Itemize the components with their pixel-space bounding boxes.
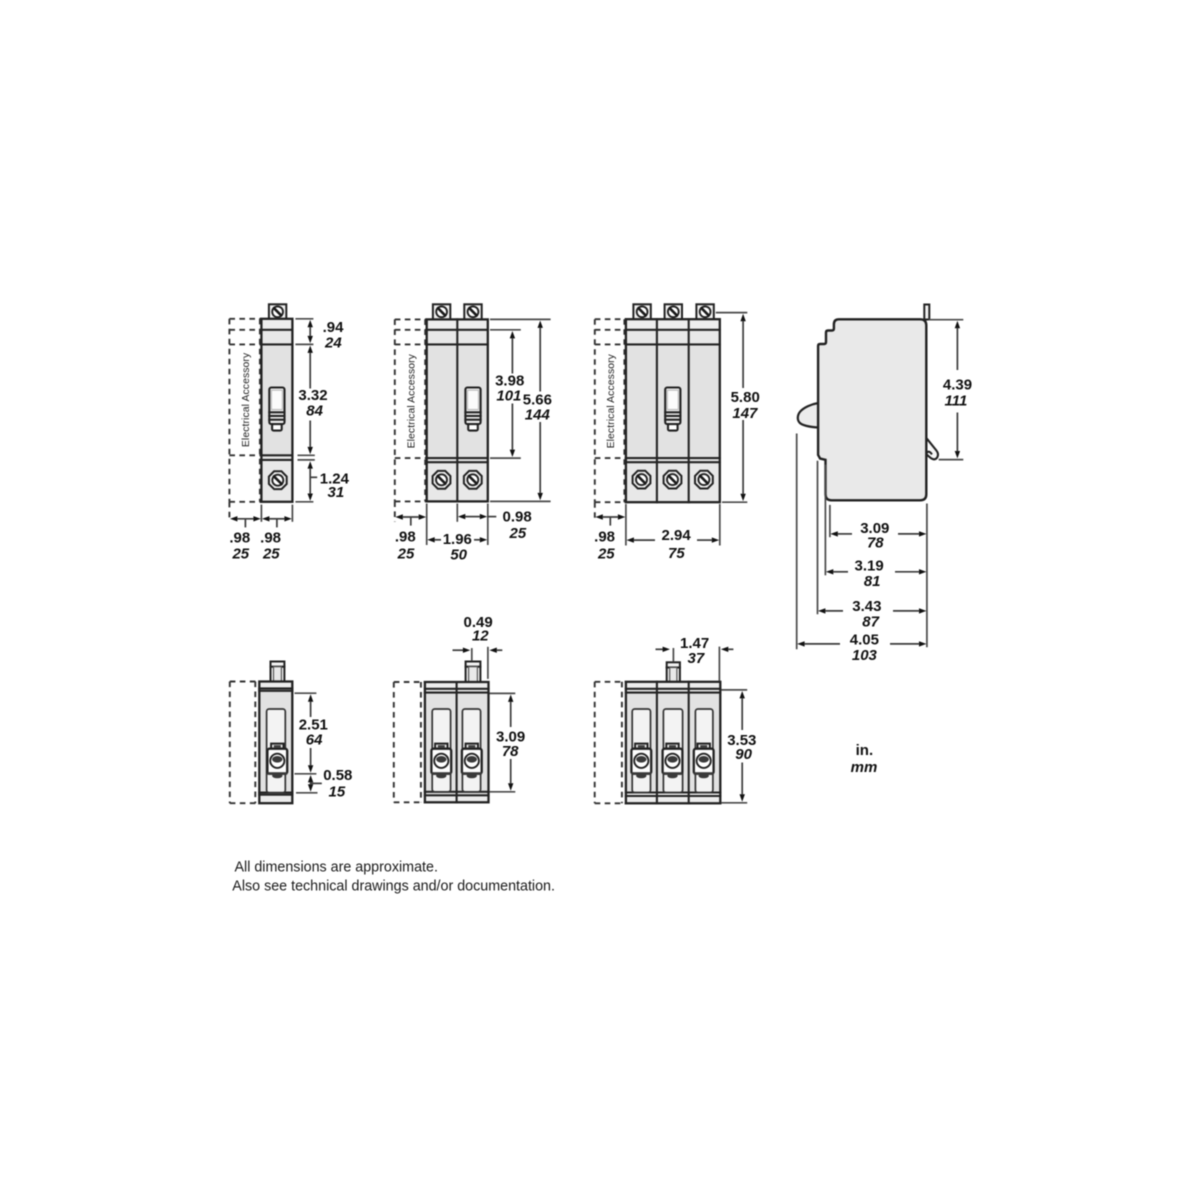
svg-text:0.58: 0.58 [323, 767, 352, 784]
svg-text:81: 81 [864, 573, 881, 590]
svg-text:3.32: 3.32 [298, 387, 327, 404]
svg-text:in.: in. [856, 742, 874, 759]
svg-text:25: 25 [509, 525, 527, 542]
svg-text:64: 64 [306, 732, 323, 749]
svg-text:78: 78 [867, 535, 884, 552]
svg-text:111: 111 [945, 393, 968, 410]
svg-text:3.19: 3.19 [854, 558, 883, 575]
svg-text:78: 78 [502, 743, 519, 760]
svg-text:Electrical Accessory: Electrical Accessory [606, 353, 617, 448]
svg-text:144: 144 [525, 406, 551, 423]
svg-text:.98: .98 [594, 529, 615, 546]
svg-text:4.05: 4.05 [850, 631, 879, 648]
svg-text:25: 25 [262, 545, 280, 562]
svg-text:75: 75 [668, 545, 685, 562]
svg-text:31: 31 [328, 484, 345, 501]
svg-text:101: 101 [496, 387, 521, 404]
svg-text:Also see technical drawings an: Also see technical drawings and/or docum… [232, 878, 555, 894]
svg-text:15: 15 [329, 783, 346, 800]
svg-text:37: 37 [688, 650, 705, 667]
svg-text:84: 84 [306, 403, 323, 420]
svg-text:5.80: 5.80 [731, 389, 760, 406]
svg-text:90: 90 [735, 746, 752, 763]
svg-text:147: 147 [732, 405, 758, 422]
svg-text:Electrical Accessory: Electrical Accessory [241, 352, 252, 447]
svg-text:.98: .98 [260, 529, 281, 546]
svg-text:.94: .94 [323, 319, 345, 336]
svg-text:2.94: 2.94 [661, 527, 691, 544]
svg-text:103: 103 [852, 647, 878, 664]
svg-text:Electrical Accessory: Electrical Accessory [407, 353, 418, 448]
svg-text:mm: mm [851, 759, 878, 776]
svg-text:.98: .98 [395, 529, 416, 546]
svg-text:12: 12 [472, 628, 489, 645]
svg-text:.98: .98 [229, 529, 250, 546]
svg-text:25: 25 [397, 546, 415, 563]
svg-text:25: 25 [597, 546, 615, 563]
svg-text:4.39: 4.39 [943, 377, 972, 394]
svg-text:1.96: 1.96 [443, 531, 472, 548]
svg-text:0.98: 0.98 [503, 509, 532, 526]
svg-text:24: 24 [324, 335, 342, 352]
svg-text:3.43: 3.43 [852, 598, 881, 615]
svg-text:50: 50 [450, 546, 467, 563]
svg-text:All dimensions are approximate: All dimensions are approximate. [235, 860, 438, 876]
svg-text:25: 25 [231, 545, 249, 562]
svg-text:87: 87 [862, 614, 879, 631]
